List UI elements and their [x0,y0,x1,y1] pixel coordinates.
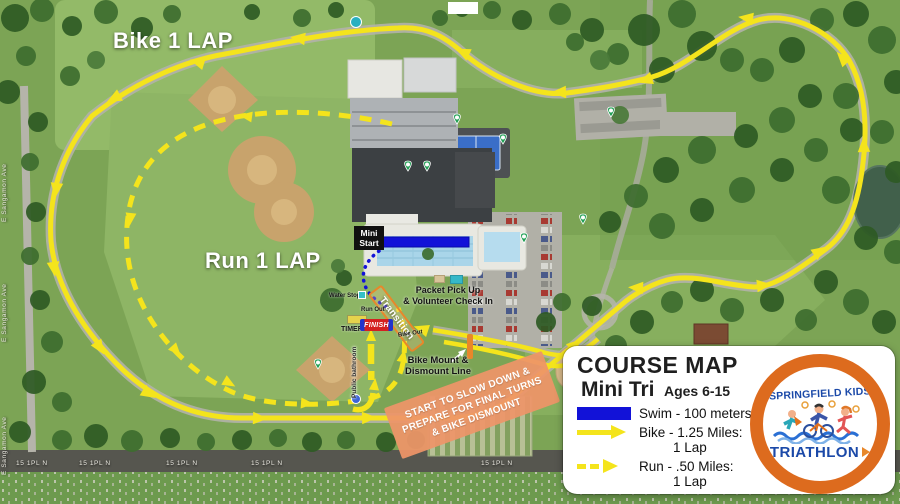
logo-wordmark: TRIATHLON [770,444,870,461]
water-stop-icon [358,291,366,299]
bike-lap-label: Bike 1 LAP [113,28,233,54]
picnic-shelter [694,324,728,344]
swim-swatch [577,407,631,420]
packet-icon [434,275,445,283]
finish-banner: FINISH [360,319,393,331]
packet-pickup-label: Packet Pick Up & Volunteer Check In [396,275,500,306]
street-label-sangamon: E Sangamon Ave [1,152,8,222]
logo-arrow-icon [862,447,870,457]
bike-mount-label: Bike Mount & Dismount Line [394,355,482,377]
street-label: 15 1PL N [79,460,111,467]
course-map: Bike 1 LAP Run 1 LAP Mini Start Packet P… [0,0,900,504]
street-label: 15 1PL N [251,460,283,467]
swim-course-bar [381,237,469,247]
street-label-sangamon: E Sangamon Ave [1,405,8,475]
park-marker-icon [350,16,362,28]
legend-ages: Ages 6-15 [664,383,730,399]
run-swatch [577,459,639,474]
envelope-icon [450,275,463,284]
legend-subtitle: Mini Tri [581,378,655,401]
street-label: 15 1PL N [166,460,198,467]
logo-cartoon-kids [772,400,868,444]
white-box [448,2,478,14]
run-out-label: Run Out [361,307,385,313]
parking-lot-center [660,112,736,136]
run-lap-label: Run 1 LAP [205,248,321,274]
bike-swatch [577,425,639,440]
springfield-kids-triathlon-logo: SPRINGFIELD KIDS TRIATHLON [750,354,890,494]
street-label: 15 1PL N [481,460,513,467]
street-label: 15 1PL N [16,460,48,467]
kiddie-pool [478,226,526,270]
street-label-sangamon: E Sangamon Ave [1,272,8,342]
water-stop-label: Water Stop [329,293,360,299]
mini-start-label: Mini Start [354,226,384,250]
public-bathroom-label: Public bathroom [351,336,358,398]
